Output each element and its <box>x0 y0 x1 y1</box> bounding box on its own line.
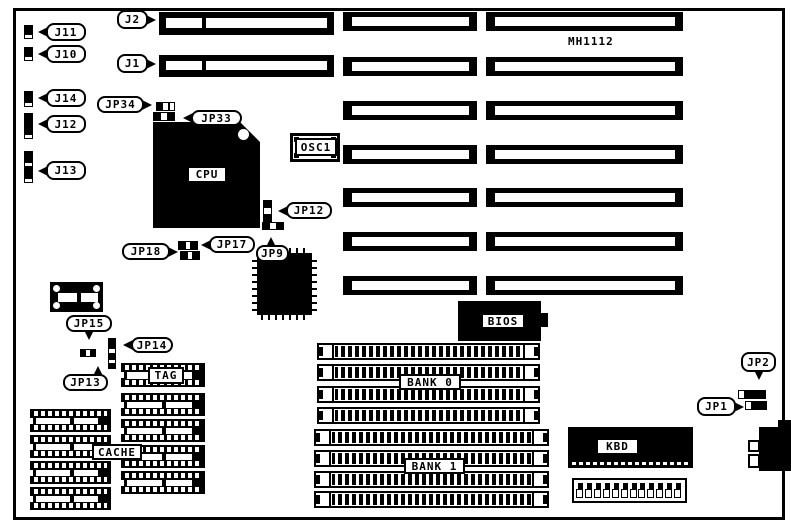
label-kbd: KBD <box>596 438 639 455</box>
isa-slot <box>486 57 683 76</box>
simm-latch <box>319 368 323 377</box>
callout-text: J1 <box>125 57 140 70</box>
strip-socket <box>656 489 663 498</box>
jumper-pin <box>24 134 33 139</box>
dip-body-right <box>166 402 191 408</box>
callout-JP18: JP18 <box>122 243 170 260</box>
simm-socket-bank1 <box>314 429 549 446</box>
callout-pointer <box>266 237 276 247</box>
strip-socket <box>665 489 672 498</box>
simm-latch <box>534 411 538 420</box>
simm-end-right <box>532 450 549 467</box>
callout-pointer <box>38 166 48 176</box>
isa-slot <box>486 101 683 120</box>
callout-JP9: JP9 <box>256 245 289 262</box>
slot-main-segment <box>206 18 327 28</box>
isa-slot <box>343 232 477 251</box>
slot-main-segment <box>206 61 327 70</box>
isa-slot <box>486 276 683 295</box>
callout-JP2: JP2 <box>741 352 776 372</box>
callout-text: J12 <box>55 118 78 131</box>
jumper-pin <box>277 222 284 230</box>
jumper-pin <box>185 241 192 250</box>
slot-opening <box>352 237 469 246</box>
simm-latch <box>534 347 538 356</box>
dip-pin-row-top <box>34 489 107 494</box>
kbd-connector-strip <box>572 478 687 503</box>
isa-slot <box>343 188 477 207</box>
callout-pointer <box>84 330 94 340</box>
dip-pin-row-top <box>125 421 201 426</box>
label-bios: BIOS <box>481 313 525 329</box>
jumper-J14 <box>24 91 33 107</box>
din-mount-pin <box>748 440 760 452</box>
simm-latch <box>319 411 323 420</box>
dip-body-left <box>36 496 70 502</box>
callout-text: JP1 <box>705 400 728 413</box>
callout-pointer <box>754 370 764 380</box>
jumper-JP9 <box>262 222 284 230</box>
strip-socket <box>630 489 637 498</box>
jumper-JP18 <box>180 251 200 260</box>
simm-contacts <box>329 491 534 508</box>
jumper-pin <box>263 215 272 222</box>
jumper-pin <box>745 390 752 399</box>
jumper-pin <box>187 251 194 260</box>
callout-text: JP17 <box>217 238 248 251</box>
simm-socket-bank1 <box>314 491 549 508</box>
jumper-JP34 <box>156 102 175 111</box>
callout-J10: J10 <box>46 45 86 63</box>
qfp-pins-bottom <box>261 315 308 320</box>
callout-JP13: JP13 <box>63 374 108 391</box>
qfp-pins-right <box>312 257 317 311</box>
jumper-pin <box>760 401 767 410</box>
callout-text: JP13 <box>70 376 101 389</box>
din-mount-pin <box>748 454 760 468</box>
strip-socket <box>638 489 645 498</box>
dip-body-left <box>36 444 70 450</box>
jumper-J11 <box>24 25 33 39</box>
dip-body-right <box>74 470 98 476</box>
jumper-pin <box>24 34 33 39</box>
callout-pointer <box>93 366 103 376</box>
callout-text: JP12 <box>294 204 325 217</box>
slot-opening <box>495 237 675 246</box>
callout-text: JP9 <box>261 247 284 260</box>
dip-body-right <box>74 418 98 424</box>
jumper-JP14 <box>108 338 116 369</box>
callout-JP15: JP15 <box>66 315 112 332</box>
qfp-body <box>257 253 312 315</box>
callout-text: JP15 <box>74 317 105 330</box>
dip-notch <box>30 470 33 476</box>
callout-J11: J11 <box>46 23 86 41</box>
xtal-window <box>81 293 98 302</box>
slot-opening <box>352 106 469 115</box>
dip-pin-row-top <box>125 473 201 478</box>
dip-pin-row-bottom <box>125 461 201 466</box>
callout-text: JP33 <box>201 112 232 125</box>
callout-pointer <box>201 240 211 250</box>
jumper-pin <box>759 390 766 399</box>
jumper-J12 <box>24 113 33 139</box>
callout-pointer <box>146 15 156 25</box>
cache-chip <box>30 461 111 484</box>
jumper-JP12 <box>263 200 272 222</box>
label-bank1: BANK 1 <box>404 458 465 474</box>
jumper-pin <box>193 251 200 260</box>
dip-notch <box>30 444 33 450</box>
slot-key-segment <box>166 61 202 70</box>
jumper-J13 <box>24 151 33 183</box>
strip-socket <box>674 489 681 498</box>
dip-notch <box>121 402 124 408</box>
label-tag: TAG <box>148 367 184 384</box>
callout-pointer <box>183 113 193 123</box>
jumper-pin <box>24 56 33 61</box>
callout-text: JP18 <box>131 245 162 258</box>
callout-JP17: JP17 <box>209 236 255 253</box>
callout-pointer <box>38 119 48 129</box>
callout-JP34: JP34 <box>97 96 144 113</box>
model-number: MH1112 <box>568 35 632 48</box>
jumper-pin <box>269 222 276 230</box>
callout-text: J14 <box>55 92 78 105</box>
jumper-pin <box>169 102 175 111</box>
isa-slot <box>343 145 477 164</box>
callout-J1: J1 <box>117 54 148 73</box>
callout-text: J2 <box>125 13 140 26</box>
jumper-pin <box>738 390 745 399</box>
dip-body-right <box>166 454 191 460</box>
jumper-pin <box>108 364 116 369</box>
slot-opening <box>352 281 469 290</box>
simm-latch <box>543 475 547 484</box>
dip-body-left <box>36 418 70 424</box>
jumper-pin <box>180 251 187 260</box>
kbd-pin-row <box>572 462 689 465</box>
dip-pin-row-bottom <box>125 409 201 414</box>
jumper-JP1 <box>745 401 767 410</box>
callout-JP1: JP1 <box>697 397 736 416</box>
isa-slot-J1 <box>159 55 334 77</box>
slot-opening <box>495 106 675 115</box>
dip-pin-row-bottom <box>125 487 201 492</box>
keyboard-din-connector <box>759 427 791 471</box>
jumper-pin <box>191 241 198 250</box>
dip-notch <box>121 372 124 378</box>
cache-chip <box>121 393 205 416</box>
callout-pointer <box>278 206 288 216</box>
simm-end-right <box>532 471 549 488</box>
xtal-component <box>50 282 103 312</box>
simm-end-right <box>523 364 540 381</box>
jumper-pin <box>263 200 272 207</box>
jumper-pin <box>263 207 272 214</box>
jumper-pin <box>168 112 175 121</box>
simm-contacts <box>332 407 525 424</box>
strip-socket <box>647 489 654 498</box>
callout-text: JP14 <box>137 339 168 352</box>
dip-pin-row-top <box>34 437 107 442</box>
dip-notch <box>121 480 124 486</box>
keyboard-din-step <box>778 420 791 429</box>
slot-opening <box>495 17 675 26</box>
isa-slot <box>343 276 477 295</box>
slot-opening <box>495 150 675 159</box>
callout-JP12: JP12 <box>286 202 332 219</box>
dip-pin-row-bottom <box>34 425 107 430</box>
jumper-J10 <box>24 47 33 61</box>
slot-opening <box>495 193 675 202</box>
simm-latch <box>316 495 320 504</box>
slot-opening <box>352 17 469 26</box>
callout-pointer <box>146 59 156 69</box>
callout-pointer <box>168 247 178 257</box>
strip-socket <box>594 489 601 498</box>
callout-J2: J2 <box>117 10 148 29</box>
simm-latch <box>316 433 320 442</box>
strip-socket <box>621 489 628 498</box>
slot-key-segment <box>166 18 202 28</box>
label-osc1: OSC1 <box>295 138 337 156</box>
callout-J14: J14 <box>46 89 86 107</box>
callout-J13: J13 <box>46 161 86 180</box>
callout-pointer <box>734 402 744 412</box>
simm-latch <box>319 347 323 356</box>
strip-socket <box>576 489 583 498</box>
jumper-pin <box>153 112 160 121</box>
simm-latch <box>543 454 547 463</box>
slot-opening <box>495 281 675 290</box>
label-cache: CACHE <box>92 444 142 460</box>
cache-chip <box>30 487 111 510</box>
simm-latch <box>319 390 323 399</box>
dip-body-right <box>166 480 191 486</box>
isa-slot <box>486 12 683 31</box>
cache-chip <box>30 409 111 432</box>
simm-end-right <box>532 429 549 446</box>
simm-contacts <box>332 343 525 360</box>
dip-pin-row-bottom <box>125 435 201 440</box>
dip-body-right <box>166 428 191 434</box>
dip-pin-row-top <box>125 395 201 400</box>
callout-text: J13 <box>55 164 78 177</box>
strip-socket <box>603 489 610 498</box>
simm-socket-bank0 <box>317 407 540 424</box>
callout-pointer <box>38 49 48 59</box>
jumper-pin <box>752 401 759 410</box>
jumper-pin <box>262 222 269 230</box>
jumper-pin <box>91 349 96 357</box>
isa-slot <box>486 188 683 207</box>
simm-socket-bank0 <box>317 343 540 360</box>
callout-text: JP2 <box>747 356 770 369</box>
simm-latch <box>316 475 320 484</box>
cpu-pin1-dot <box>238 129 249 140</box>
jumper-pin <box>24 102 33 107</box>
strip-socket <box>612 489 619 498</box>
jumper-pin <box>178 241 185 250</box>
cache-chip <box>121 471 205 494</box>
isa-slot <box>343 57 477 76</box>
jumper-JP15 <box>80 349 96 357</box>
isa-slot <box>343 12 477 31</box>
callout-pointer <box>38 93 48 103</box>
jumper-JP33 <box>153 112 175 121</box>
simm-end-right <box>532 491 549 508</box>
simm-end-right <box>523 407 540 424</box>
dip-pin-row-top <box>34 411 107 416</box>
callout-text: J11 <box>55 26 78 39</box>
simm-latch <box>543 433 547 442</box>
xtal-hole <box>93 302 100 309</box>
jumper-pin <box>745 401 752 410</box>
dip-pin-row-bottom <box>34 503 107 508</box>
bios-chip-tab <box>541 313 548 327</box>
callout-pointer <box>142 100 152 110</box>
callout-JP33: JP33 <box>191 110 242 126</box>
slot-opening <box>495 62 675 71</box>
isa-slot-J2 <box>159 12 334 35</box>
dip-body-left <box>127 428 162 434</box>
slot-opening <box>352 193 469 202</box>
xtal-window <box>58 293 77 302</box>
simm-latch <box>316 454 320 463</box>
xtal-hole <box>53 285 60 292</box>
jumper-pin <box>160 112 167 121</box>
callout-JP14: JP14 <box>131 337 173 353</box>
dip-notch <box>30 496 33 502</box>
callout-pointer <box>123 340 133 350</box>
callout-text: JP34 <box>105 98 136 111</box>
cache-chip <box>121 419 205 442</box>
simm-end-right <box>523 343 540 360</box>
dip-body-left <box>127 480 162 486</box>
callout-J12: J12 <box>46 115 86 133</box>
label-cpu: CPU <box>187 166 227 183</box>
jumper-JP17 <box>178 241 198 250</box>
jumper-JP2 <box>738 390 766 399</box>
dip-body-left <box>36 470 70 476</box>
simm-end-right <box>523 386 540 403</box>
simm-latch <box>534 390 538 399</box>
simm-latch <box>543 495 547 504</box>
isa-slot <box>486 232 683 251</box>
xtal-hole <box>53 302 60 309</box>
dip-notch <box>30 418 33 424</box>
simm-latch <box>534 368 538 377</box>
callout-pointer <box>38 27 48 37</box>
motherboard-diagram: MH1112J11J10J14J12J13J2J1JP34JP33JP12JP9… <box>0 0 791 527</box>
simm-contacts <box>329 429 534 446</box>
dip-body-right <box>74 496 98 502</box>
slot-opening <box>352 150 469 159</box>
dip-body-left <box>127 402 162 408</box>
jumper-pin <box>752 390 759 399</box>
slot-opening <box>352 62 469 71</box>
isa-slot <box>486 145 683 164</box>
dip-pin-row-bottom <box>34 477 107 482</box>
isa-slot <box>343 101 477 120</box>
jumper-pin <box>24 178 33 183</box>
strip-socket <box>585 489 592 498</box>
xtal-hole <box>93 285 100 292</box>
callout-text: J10 <box>55 48 78 61</box>
dip-notch <box>121 428 124 434</box>
dip-pin-row-top <box>34 463 107 468</box>
label-bank0: BANK 0 <box>399 374 461 390</box>
